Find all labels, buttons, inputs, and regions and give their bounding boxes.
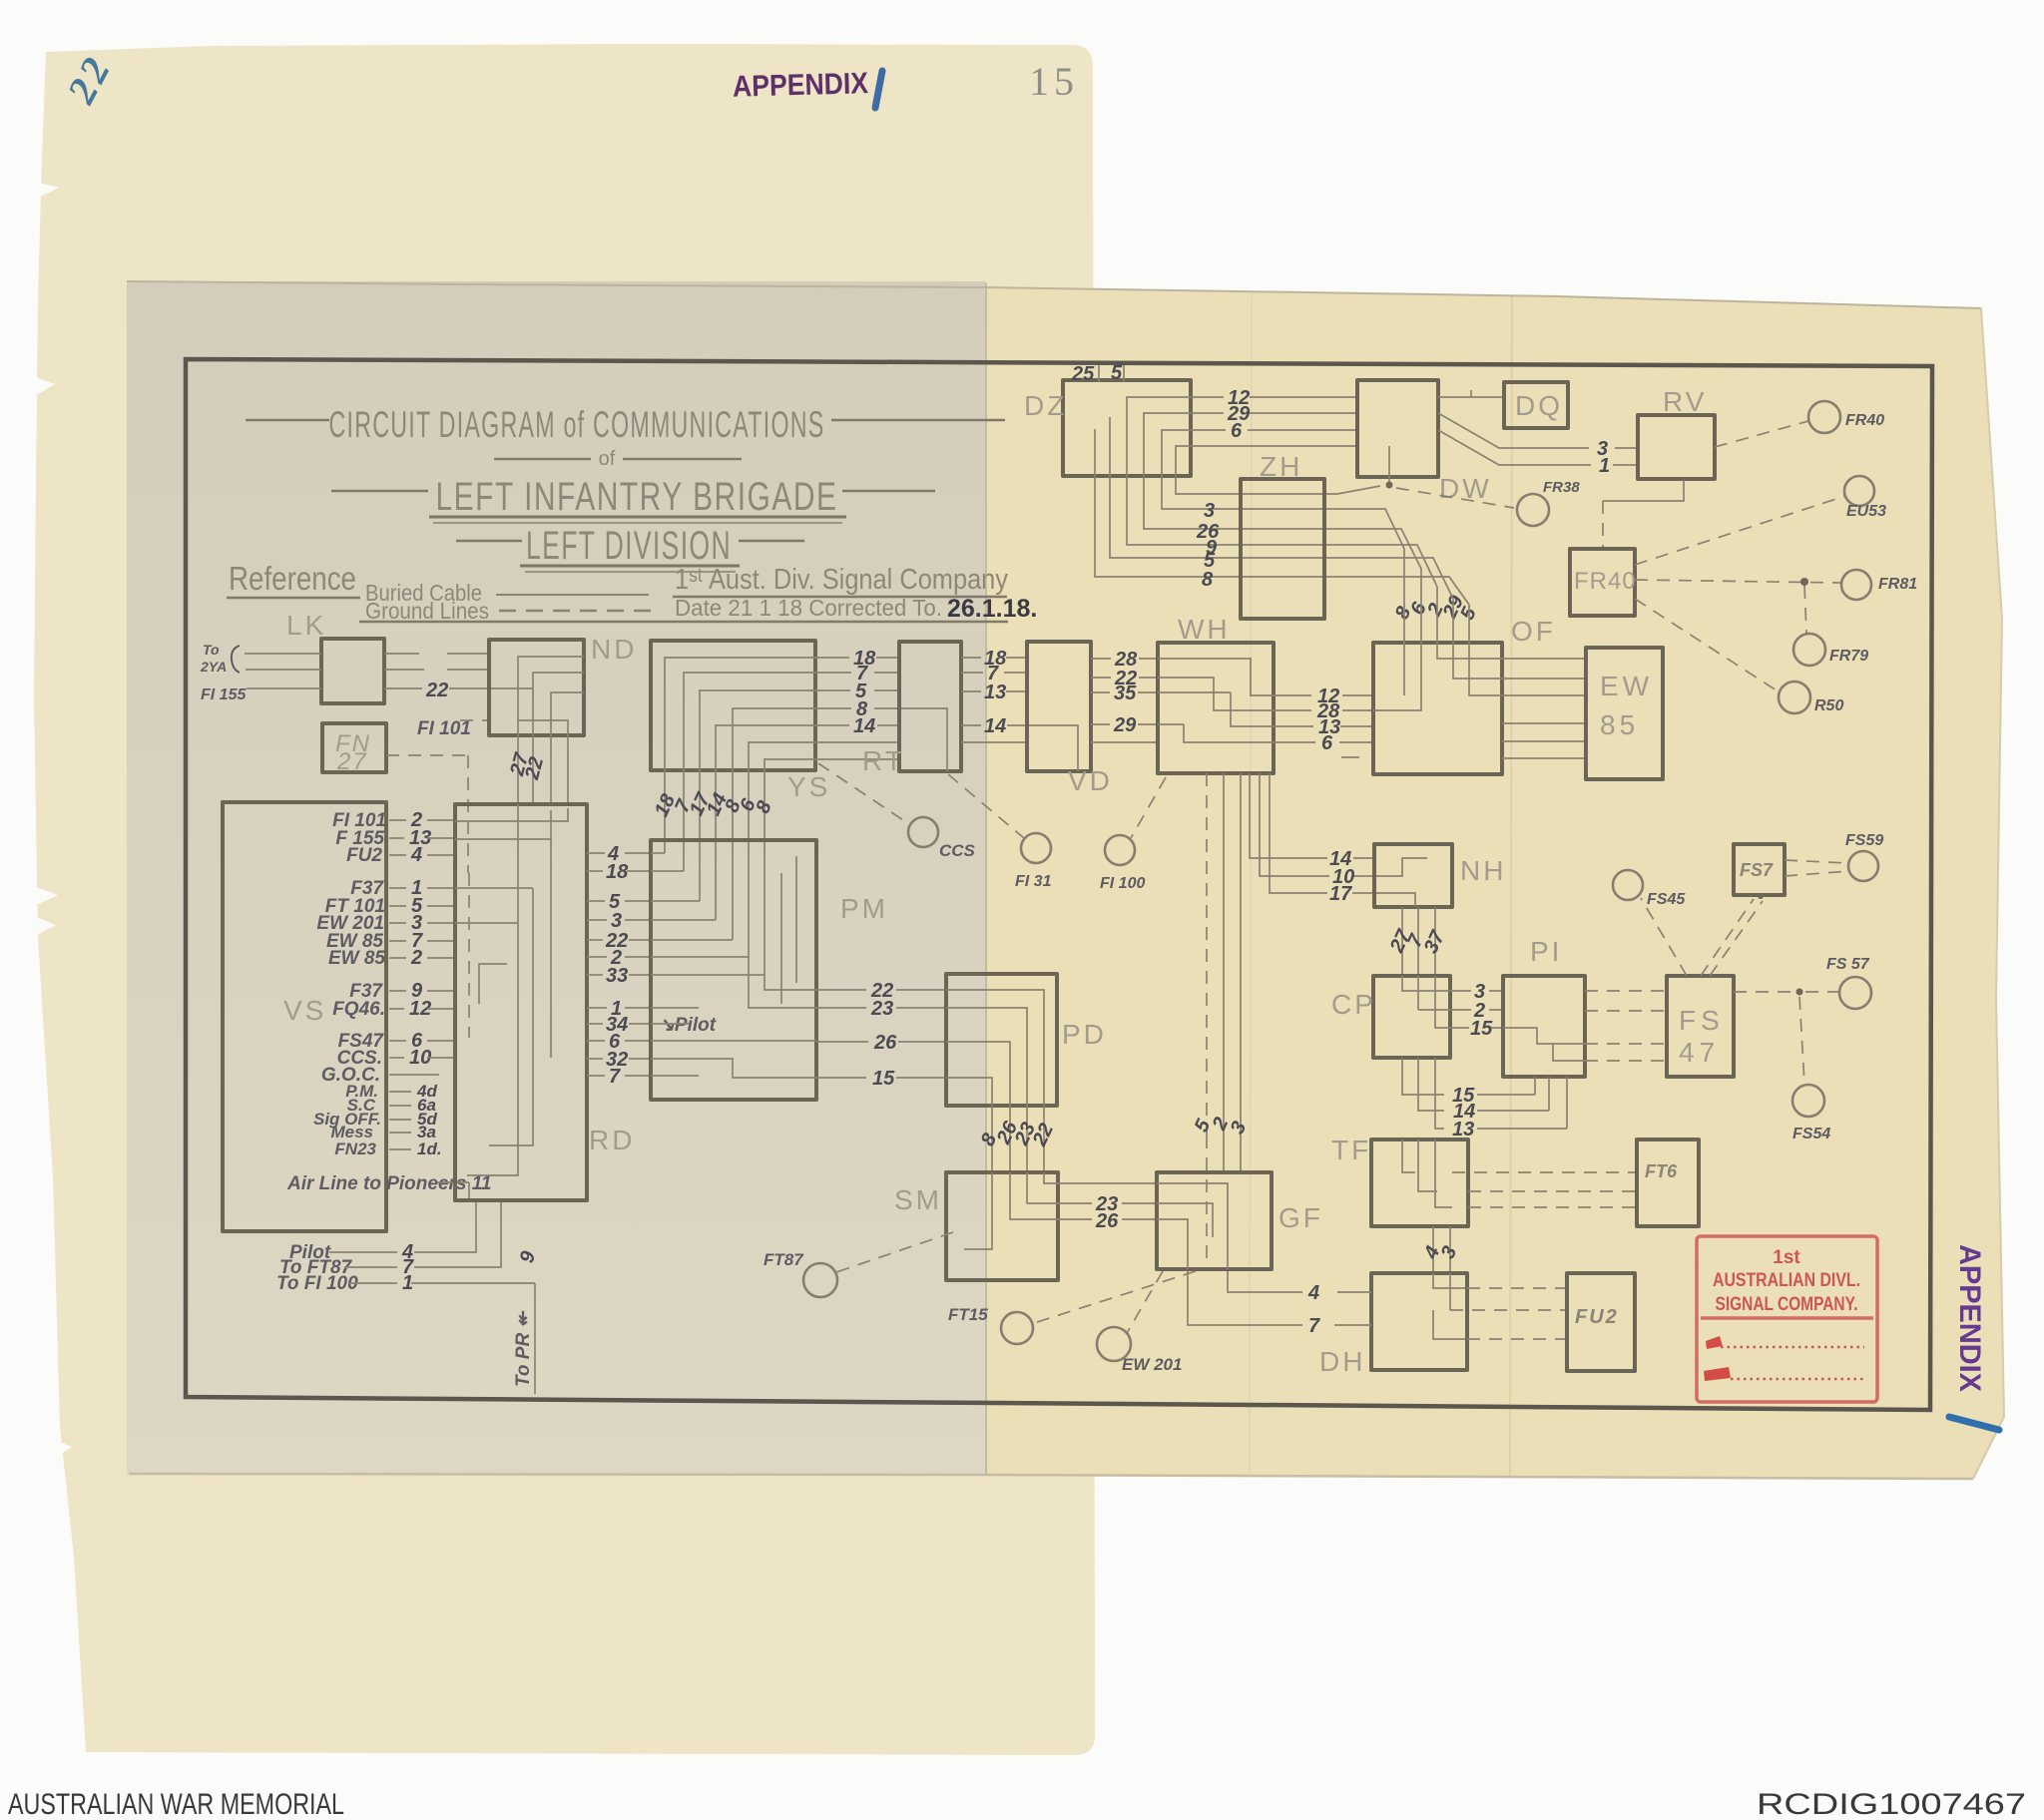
svg-text:22: 22 — [425, 680, 448, 701]
svg-text:13: 13 — [1452, 1119, 1474, 1140]
svg-text:APPENDIX: APPENDIX — [1953, 1244, 1986, 1392]
svg-text:To PR ↞: To PR ↞ — [513, 1311, 534, 1387]
svg-text:RT: RT — [862, 745, 905, 776]
svg-text:1ˢᵗ Aust. Div. Signal Company: 1ˢᵗ Aust. Div. Signal Company — [675, 564, 1008, 596]
svg-text:Date 21 1 18 Corrected To.: Date 21 1 18 Corrected To. — [675, 595, 942, 621]
svg-text:13: 13 — [984, 682, 1006, 703]
svg-text:To: To — [203, 642, 220, 658]
svg-text:FT87: FT87 — [764, 1250, 804, 1269]
svg-text:8: 8 — [1202, 569, 1214, 591]
svg-text:EU53: EU53 — [1846, 503, 1886, 520]
svg-text:1d.: 1d. — [417, 1139, 442, 1158]
svg-text:YS: YS — [787, 771, 830, 802]
svg-text:WH: WH — [1178, 614, 1231, 645]
svg-text:NH: NH — [1460, 855, 1506, 886]
svg-text:23: 23 — [870, 998, 893, 1020]
svg-text:4: 4 — [1307, 1282, 1319, 1304]
svg-text:SIGNAL COMPANY.: SIGNAL COMPANY. — [1716, 1294, 1858, 1315]
svg-text:LEFT DIVISION: LEFT DIVISION — [526, 524, 732, 568]
svg-text:DQ: DQ — [1515, 390, 1563, 421]
svg-text:FN23: FN23 — [334, 1139, 376, 1158]
svg-text:LEFT INFANTRY BRIGADE: LEFT INFANTRY BRIGADE — [436, 475, 838, 519]
svg-text:18: 18 — [606, 861, 629, 883]
svg-text:GF: GF — [1278, 1202, 1323, 1233]
svg-text:CIRCUIT DIAGRAM of COMMUNIC: CIRCUIT DIAGRAM of COMMUNICATIONS — [329, 404, 825, 445]
svg-text:FT6: FT6 — [1645, 1161, 1678, 1181]
svg-text:EW 85: EW 85 — [328, 948, 385, 969]
svg-text:CP: CP — [1331, 989, 1376, 1020]
svg-text:RV: RV — [1663, 386, 1707, 417]
svg-text:FQ46.: FQ46. — [332, 999, 385, 1020]
svg-text:FI 31: FI 31 — [1015, 873, 1052, 890]
svg-text:26: 26 — [873, 1032, 897, 1054]
svg-text:14: 14 — [853, 715, 875, 737]
svg-text:FT15: FT15 — [948, 1305, 988, 1324]
svg-text:FR40: FR40 — [1574, 568, 1637, 595]
svg-text:FS54: FS54 — [1792, 1126, 1830, 1142]
svg-text:7: 7 — [609, 1066, 621, 1088]
svg-text:2YA: 2YA — [200, 659, 227, 675]
svg-text:SM: SM — [894, 1184, 942, 1215]
svg-text:PD: PD — [1062, 1019, 1107, 1050]
svg-text:PM: PM — [840, 893, 888, 924]
svg-text:27: 27 — [336, 748, 368, 775]
svg-text:FU2: FU2 — [1575, 1306, 1619, 1328]
svg-text:FI 155: FI 155 — [201, 686, 247, 703]
svg-text:Ground Lines: Ground Lines — [365, 598, 489, 624]
svg-text:DZ: DZ — [1024, 390, 1067, 421]
svg-text:2: 2 — [410, 947, 422, 969]
svg-text:R50: R50 — [1814, 697, 1843, 714]
svg-text:FS59: FS59 — [1845, 832, 1883, 849]
svg-text:7: 7 — [1308, 1315, 1320, 1337]
svg-text:FR81: FR81 — [1878, 576, 1917, 593]
svg-text:Air Line to Pioneers 11: Air Line to Pioneers 11 — [286, 1173, 491, 1194]
svg-text:AUSTRALIAN DIVL.: AUSTRALIAN DIVL. — [1713, 1270, 1860, 1291]
svg-text:47: 47 — [1679, 1037, 1720, 1068]
svg-text:AUSTRALIAN WAR MEMORIAL: AUSTRALIAN WAR MEMORIAL — [8, 1788, 344, 1820]
svg-text:35: 35 — [1114, 682, 1137, 704]
svg-text:FR38: FR38 — [1543, 479, 1580, 496]
svg-text:6: 6 — [1231, 420, 1243, 442]
svg-text:FI 100: FI 100 — [1100, 875, 1145, 892]
svg-text:6: 6 — [1321, 732, 1333, 754]
svg-text:VS: VS — [283, 995, 326, 1026]
svg-text:5: 5 — [1111, 362, 1123, 384]
svg-text:FS 57: FS 57 — [1826, 956, 1870, 973]
svg-text:85: 85 — [1600, 709, 1639, 740]
svg-text:33: 33 — [606, 965, 628, 987]
svg-text:↘Pilot: ↘Pilot — [659, 1015, 717, 1036]
svg-text:To FI 100: To FI 100 — [276, 1273, 358, 1294]
svg-text:EW 201: EW 201 — [1122, 1355, 1182, 1374]
svg-text:15: 15 — [1029, 59, 1079, 104]
svg-text:FS7: FS7 — [1740, 860, 1774, 880]
svg-text:APPENDIX: APPENDIX — [733, 67, 869, 104]
svg-text:ZH: ZH — [1260, 451, 1302, 482]
svg-text:FR79: FR79 — [1829, 648, 1868, 665]
svg-text:26.1.18.: 26.1.18. — [947, 595, 1037, 623]
svg-text:1: 1 — [1599, 455, 1610, 477]
svg-text:17: 17 — [1329, 883, 1352, 905]
svg-text:15: 15 — [1470, 1018, 1493, 1040]
svg-text:Reference: Reference — [229, 560, 356, 597]
svg-text:RCDIG1007467: RCDIG1007467 — [1757, 1788, 2026, 1820]
svg-text:FI 101: FI 101 — [417, 718, 471, 739]
svg-text:29: 29 — [1113, 714, 1137, 736]
svg-text:EW: EW — [1600, 671, 1653, 701]
svg-text:15: 15 — [872, 1068, 895, 1090]
svg-text:25: 25 — [1071, 363, 1095, 385]
svg-text:3: 3 — [611, 910, 622, 932]
svg-text:PI: PI — [1530, 936, 1562, 967]
svg-text:FS45: FS45 — [1647, 891, 1686, 908]
svg-text:FR40: FR40 — [1845, 412, 1884, 429]
svg-text:26: 26 — [1095, 1210, 1119, 1232]
svg-text:RD: RD — [589, 1125, 635, 1155]
svg-text:VD: VD — [1068, 765, 1113, 796]
svg-text:FS: FS — [1679, 1005, 1725, 1036]
svg-text:LK: LK — [286, 610, 326, 641]
svg-text:OF: OF — [1511, 616, 1556, 647]
svg-text:ND: ND — [591, 634, 637, 665]
svg-text:4: 4 — [410, 844, 422, 866]
svg-text:3: 3 — [1204, 500, 1215, 522]
svg-text:TF: TF — [1331, 1135, 1371, 1165]
svg-text:14: 14 — [984, 715, 1006, 737]
svg-text:DH: DH — [1319, 1346, 1365, 1377]
svg-text:CCS: CCS — [939, 841, 976, 860]
svg-text:of: of — [599, 448, 616, 470]
svg-text:1st: 1st — [1773, 1247, 1800, 1268]
svg-text:FU2: FU2 — [346, 845, 382, 866]
